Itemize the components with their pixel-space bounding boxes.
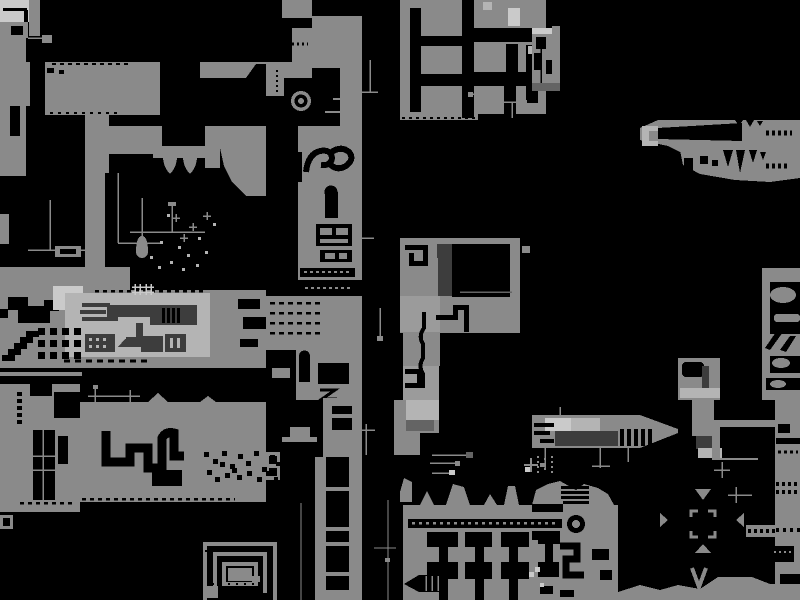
map-shape <box>350 95 358 99</box>
map-shape <box>555 431 618 446</box>
map-shape <box>213 223 216 226</box>
map-shape <box>326 572 349 576</box>
map-shape <box>561 496 589 499</box>
map-shape <box>178 246 181 249</box>
map-shape <box>50 352 57 359</box>
map-shape <box>420 433 447 455</box>
map-shape <box>600 570 612 580</box>
map-shape <box>535 567 540 572</box>
map-shape <box>545 544 553 562</box>
map-shape <box>299 351 310 362</box>
map-shape <box>225 473 230 478</box>
map-shape <box>14 343 27 349</box>
map-shape <box>150 256 153 259</box>
map-shape <box>405 369 422 374</box>
map-shape <box>136 323 143 338</box>
map-shape <box>0 214 9 244</box>
map-shape <box>89 345 92 348</box>
map-shape <box>158 266 161 269</box>
map-shape <box>336 228 348 235</box>
map-shape <box>475 579 484 600</box>
map-shape <box>292 28 312 66</box>
map-shape <box>17 413 22 417</box>
map-shape <box>205 251 208 254</box>
map-shape <box>772 546 794 562</box>
map-shape <box>213 459 218 464</box>
map-shape <box>29 0 40 36</box>
map-shape <box>534 423 554 427</box>
map-shape <box>240 339 258 347</box>
map-shape <box>377 336 383 341</box>
map-shape <box>483 2 492 10</box>
map-shape <box>318 363 349 384</box>
map-shape <box>504 86 516 114</box>
map-shape <box>167 308 170 323</box>
map-shape <box>529 572 534 577</box>
map-shape <box>522 100 527 105</box>
map-shape <box>770 380 786 388</box>
map-shape <box>634 429 638 446</box>
top-hat <box>290 427 310 438</box>
map-shape <box>298 98 304 104</box>
map-shape <box>0 62 30 106</box>
map-shape <box>17 392 22 396</box>
map-shape <box>167 214 170 217</box>
map-shape <box>198 237 201 240</box>
map-shape <box>74 340 81 347</box>
map-shape <box>546 60 552 74</box>
map-shape <box>522 246 530 253</box>
map-shape <box>772 358 790 368</box>
map-shape <box>320 228 332 235</box>
map-shape <box>778 424 790 433</box>
map-shape <box>103 338 106 341</box>
map-shape <box>385 558 390 562</box>
map-shape <box>532 83 560 91</box>
map-shape <box>320 250 352 262</box>
map-shape <box>410 8 421 112</box>
map-shape <box>58 357 154 367</box>
map-shape <box>2 355 15 361</box>
map-shape <box>405 383 417 388</box>
map-shape <box>406 420 434 431</box>
map-shape <box>160 241 163 244</box>
map-shape <box>276 462 280 466</box>
map-shape <box>60 249 76 254</box>
map-shape <box>103 345 106 348</box>
top-right-small-structure <box>532 26 560 91</box>
map-shape <box>80 310 106 314</box>
map-shape <box>238 299 260 309</box>
map-shape <box>642 126 658 131</box>
map-shape <box>325 253 335 259</box>
map-shape <box>170 338 173 348</box>
map-shape <box>712 160 718 166</box>
map-shape <box>45 62 160 115</box>
map-shape <box>187 254 190 257</box>
map-shape <box>206 586 218 598</box>
map-shape <box>26 331 39 337</box>
map-shape <box>339 253 347 259</box>
map-shape <box>506 44 518 72</box>
map-shape <box>17 406 22 410</box>
map-shape <box>561 491 589 494</box>
map-shape <box>682 362 704 377</box>
map-shape <box>298 152 302 182</box>
map-shape <box>247 471 252 476</box>
map-shape <box>89 338 92 341</box>
map-shape <box>561 486 589 489</box>
map-shape <box>8 349 21 355</box>
map-shape <box>215 477 220 482</box>
map-shape <box>62 352 69 359</box>
map-shape <box>282 437 317 442</box>
map-shape <box>152 470 182 486</box>
map-shape <box>282 0 312 18</box>
map-shape <box>85 334 115 352</box>
map-shape <box>409 261 423 266</box>
map-shape <box>438 258 452 296</box>
map-shape <box>501 562 529 579</box>
map-shape <box>47 68 54 73</box>
map-shape <box>540 439 554 443</box>
map-shape <box>10 106 20 136</box>
map-shape <box>243 317 266 329</box>
map-shape <box>0 38 26 62</box>
map-shape <box>177 308 180 323</box>
map-shape <box>274 477 278 481</box>
map-shape <box>449 470 455 475</box>
map-shape <box>82 317 118 321</box>
map-shape <box>417 374 422 388</box>
map-shape <box>501 532 529 547</box>
map-shape <box>177 338 180 348</box>
map-shape <box>272 368 290 378</box>
map-shape <box>532 504 563 512</box>
map-shape <box>38 352 45 359</box>
map-shape <box>168 202 176 206</box>
map-shape <box>455 461 460 466</box>
map-shape <box>54 392 80 418</box>
game-map-canvas <box>0 0 800 600</box>
map-shape <box>257 477 262 482</box>
map-shape <box>93 385 98 389</box>
map-shape <box>38 328 45 335</box>
map-shape <box>427 532 458 547</box>
map-shape <box>464 305 469 332</box>
map-shape <box>266 471 271 476</box>
map-shape <box>238 454 243 459</box>
room-complex <box>400 0 546 120</box>
map-shape <box>439 547 448 562</box>
map-shape <box>222 451 227 456</box>
map-shape <box>332 414 352 418</box>
map-shape <box>540 586 553 594</box>
map-shape <box>204 452 209 457</box>
map-shape <box>254 451 259 456</box>
map-shape <box>538 562 559 577</box>
map-shape <box>74 328 81 335</box>
map-shape <box>508 8 520 26</box>
map-shape <box>220 462 225 467</box>
map-shape <box>11 26 23 35</box>
map-shape <box>246 461 251 466</box>
map-shape <box>532 28 554 34</box>
map-shape <box>534 431 550 435</box>
map-shape <box>540 583 544 587</box>
map-shape <box>165 334 186 352</box>
map-shape <box>82 303 110 307</box>
map-shape <box>172 308 175 323</box>
game-map-screen <box>0 0 800 600</box>
map-shape <box>33 430 55 500</box>
map-shape <box>182 268 185 271</box>
map-shape <box>400 296 440 332</box>
map-shape <box>96 345 99 348</box>
map-shape <box>50 328 57 335</box>
map-shape <box>439 400 447 433</box>
map-shape <box>59 70 64 74</box>
map-shape <box>532 531 558 540</box>
map-shape <box>465 562 492 579</box>
map-shape <box>468 92 473 97</box>
map-shape <box>205 126 220 168</box>
map-shape <box>509 547 518 562</box>
map-shape <box>572 520 580 528</box>
map-shape <box>228 568 252 581</box>
map-shape <box>320 239 348 243</box>
map-shape <box>712 420 778 427</box>
map-shape <box>170 261 173 264</box>
map-shape <box>232 468 237 473</box>
map-shape <box>20 337 33 343</box>
map-shape <box>475 547 484 562</box>
map-shape <box>326 487 349 491</box>
map-shape <box>774 314 800 322</box>
map-shape <box>423 245 428 266</box>
map-shape <box>3 8 27 11</box>
map-shape <box>552 26 560 90</box>
map-shape <box>0 309 8 318</box>
map-shape <box>712 427 720 459</box>
map-shape <box>592 549 609 560</box>
map-shape <box>74 352 81 359</box>
map-shape <box>266 62 284 96</box>
map-shape <box>641 429 645 446</box>
map-shape <box>96 338 99 341</box>
map-shape <box>30 384 52 396</box>
map-shape <box>38 340 45 347</box>
map-shape <box>3 518 10 526</box>
map-shape <box>466 452 473 458</box>
map-shape <box>162 308 165 323</box>
map-shape <box>648 429 652 446</box>
map-shape <box>0 372 82 376</box>
map-shape <box>627 429 631 446</box>
map-shape <box>684 158 693 170</box>
map-shape <box>465 532 492 547</box>
map-shape <box>563 501 589 504</box>
black-room <box>452 244 510 297</box>
droplet <box>136 236 148 258</box>
map-shape <box>88 126 162 154</box>
map-shape <box>270 455 275 460</box>
map-shape <box>680 388 720 398</box>
map-shape <box>560 590 574 597</box>
map-shape <box>118 339 163 347</box>
map-shape <box>62 328 69 335</box>
map-shape <box>42 35 52 43</box>
map-shape <box>312 16 362 68</box>
map-shape <box>24 10 28 22</box>
map-shape <box>325 186 338 199</box>
map-shape <box>700 156 708 164</box>
map-shape <box>62 340 69 347</box>
map-shape <box>153 146 205 158</box>
map-shape <box>620 429 624 446</box>
map-shape <box>50 340 57 347</box>
map-shape <box>326 457 349 590</box>
map-shape <box>237 475 242 480</box>
map-shape <box>17 399 22 403</box>
map-shape <box>770 287 796 303</box>
map-shape <box>536 37 546 49</box>
map-shape <box>326 527 349 531</box>
map-shape <box>196 264 199 267</box>
map-shape <box>776 438 800 444</box>
map-shape <box>252 576 260 582</box>
map-shape <box>17 420 22 424</box>
map-shape <box>207 470 212 475</box>
map-shape <box>58 436 68 464</box>
map-shape <box>326 542 349 546</box>
map-shape <box>406 400 439 420</box>
map-shape <box>509 579 518 600</box>
map-shape <box>642 141 658 146</box>
map-shape <box>534 53 541 70</box>
map-shape <box>692 400 714 436</box>
map-shape <box>525 467 530 472</box>
